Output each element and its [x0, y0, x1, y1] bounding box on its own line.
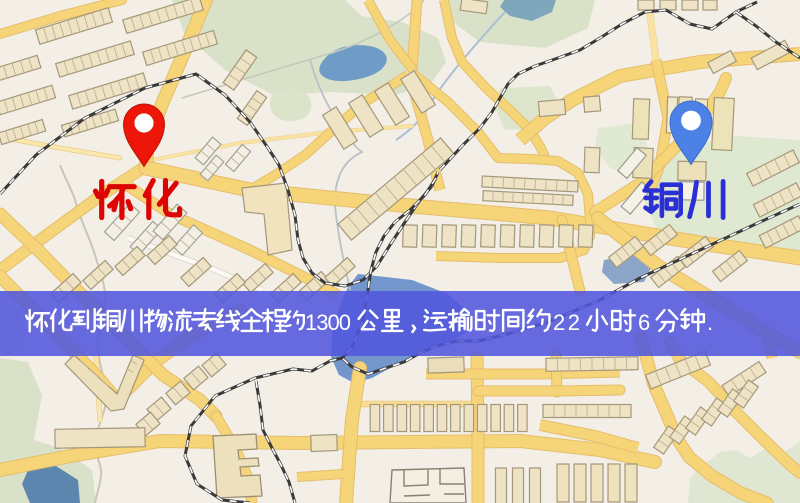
- svg-text:6: 6: [638, 310, 650, 335]
- svg-text:1300: 1300: [305, 310, 351, 335]
- svg-text:.: .: [707, 310, 713, 335]
